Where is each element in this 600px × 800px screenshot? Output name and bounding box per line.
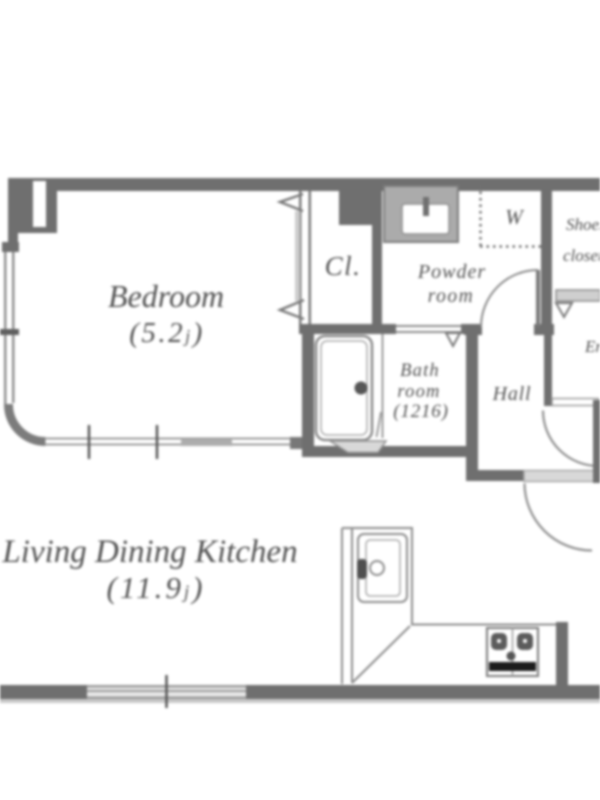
svg-text:Entrance: Entrance <box>584 337 600 356</box>
svg-text:closet: closet <box>563 246 600 265</box>
svg-text:(5.2j): (5.2j) <box>129 317 205 349</box>
svg-text:room: room <box>428 286 474 307</box>
svg-text:(1216): (1216) <box>393 401 448 422</box>
svg-text:Living Dining Kitchen: Living Dining Kitchen <box>1 534 297 570</box>
svg-text:Cl.: Cl. <box>325 251 362 281</box>
svg-text:Bath: Bath <box>400 361 440 381</box>
svg-text:Powder: Powder <box>417 261 486 283</box>
svg-text:Bedroom: Bedroom <box>108 278 224 314</box>
svg-text:Shoes: Shoes <box>566 215 600 234</box>
svg-text:W: W <box>505 205 525 229</box>
svg-text:room: room <box>397 382 440 402</box>
svg-text:Hall: Hall <box>492 383 532 405</box>
